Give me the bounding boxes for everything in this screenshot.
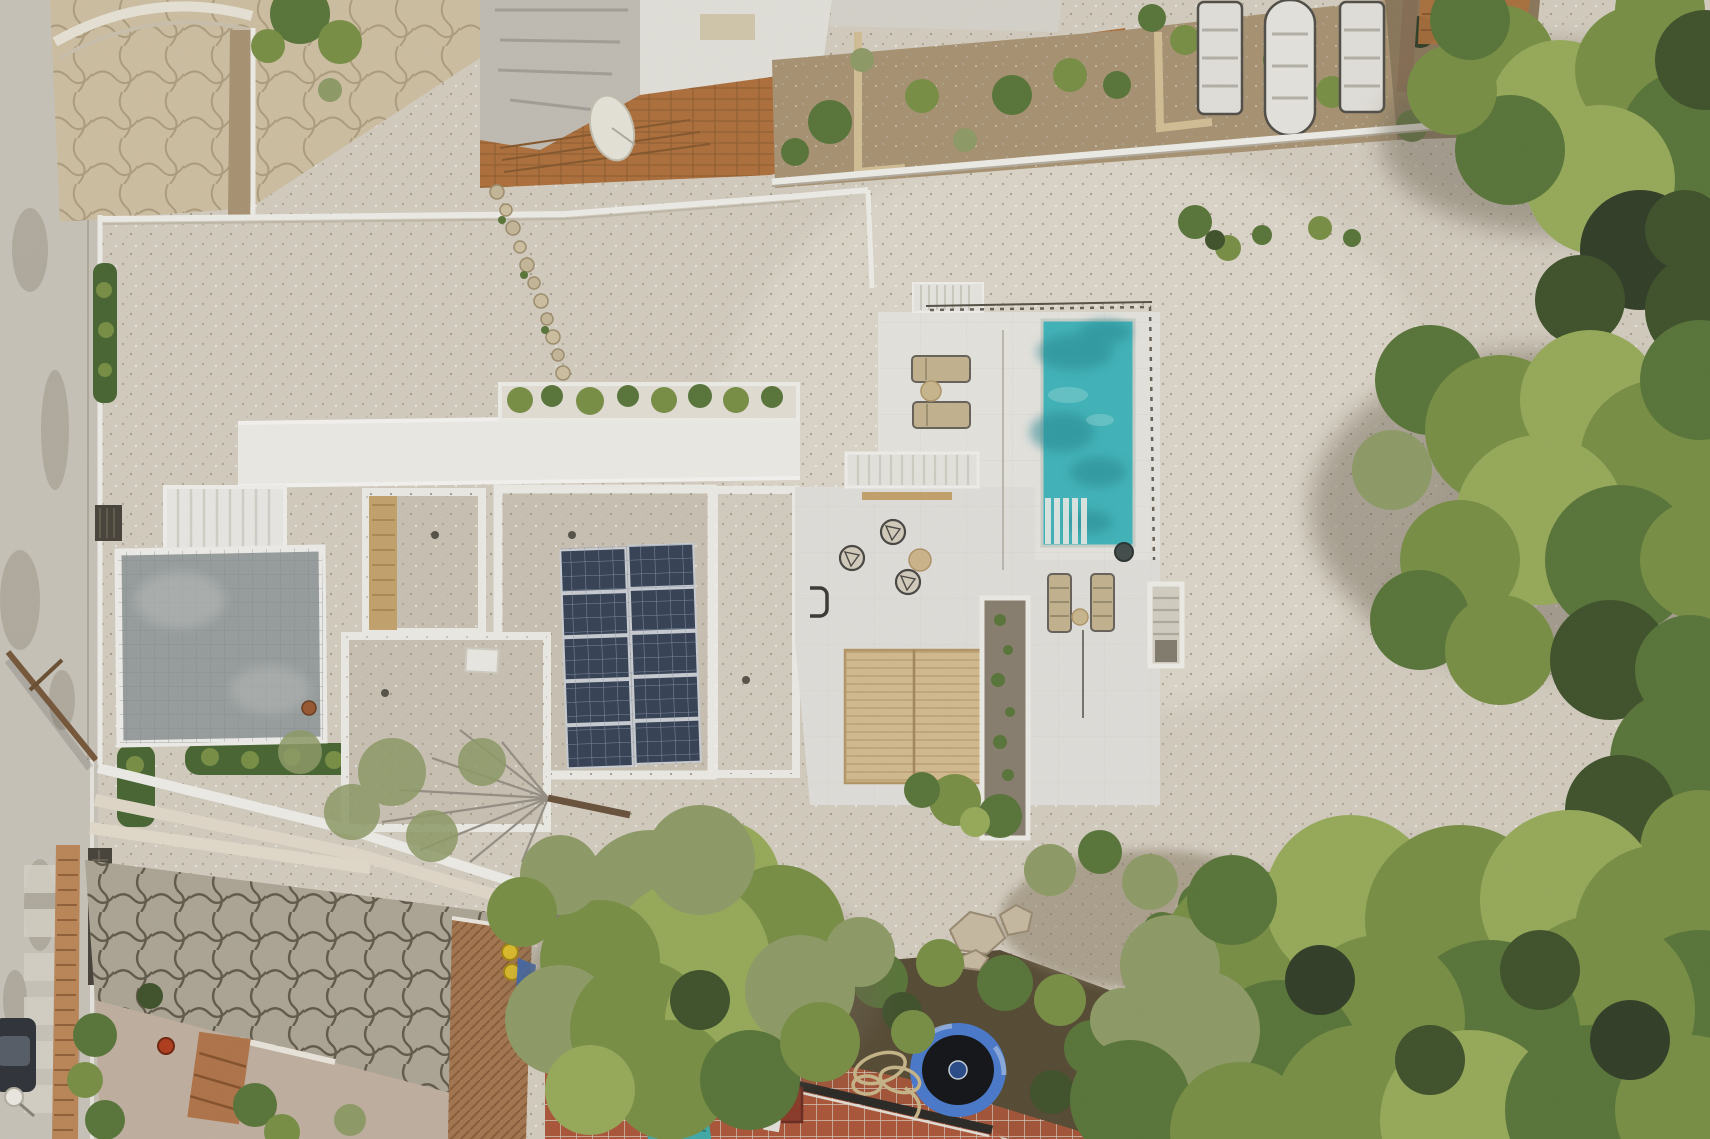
grain-overlay (0, 0, 1710, 1139)
aerial-photo (0, 0, 1710, 1139)
aerial-photo-canvas (0, 0, 1710, 1139)
